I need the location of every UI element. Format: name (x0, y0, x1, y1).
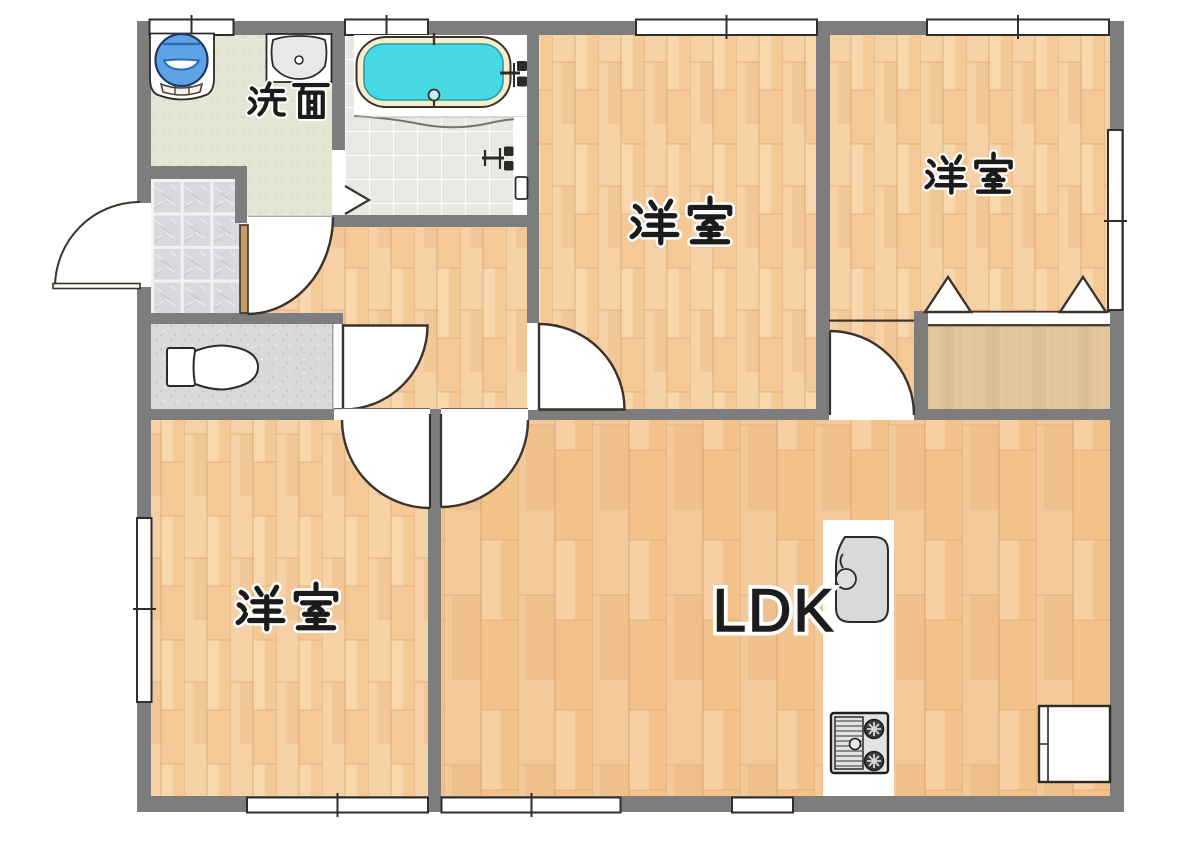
svg-text:LDK: LDK (713, 577, 836, 644)
